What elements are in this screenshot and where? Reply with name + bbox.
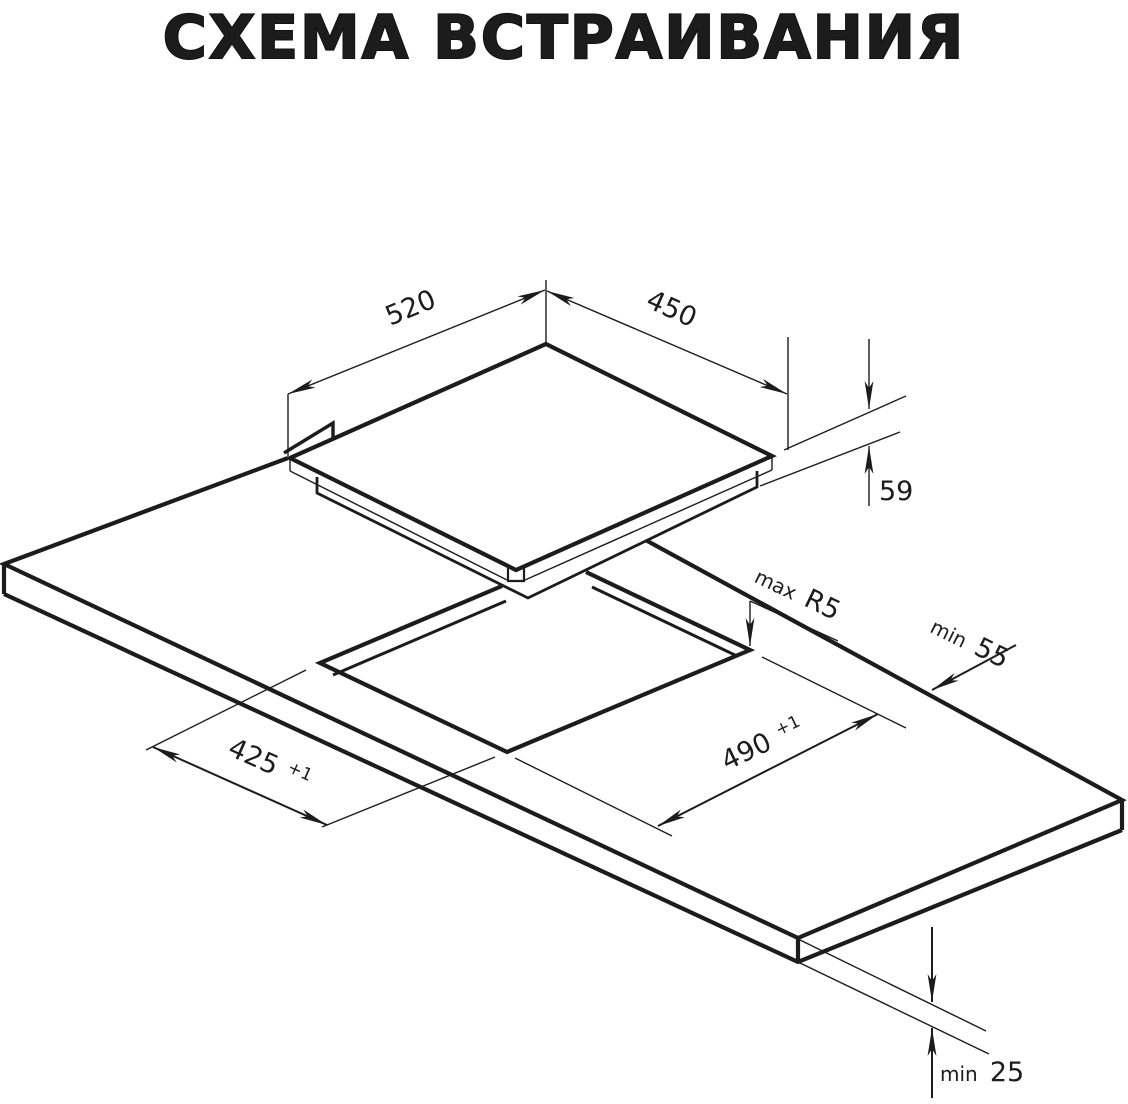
ext-line-top: [784, 396, 906, 450]
dim-425-label: 425 +1: [224, 732, 316, 796]
page-title: СХЕМА ВСТРАИВАНИЯ: [163, 3, 965, 73]
dim-min55-label: min 55: [926, 610, 1014, 675]
ext-line-left: [146, 670, 306, 750]
dim-min25-prefix: min: [940, 1062, 978, 1086]
cooktop-glass-top: [290, 344, 772, 570]
ext-line-right: [322, 757, 495, 827]
leader-rear-clearance: min 55: [926, 610, 1016, 690]
dim-maxR5-prefix: max: [751, 564, 801, 604]
ext-line-top: [800, 940, 986, 1031]
dim-520-label: 520: [381, 284, 440, 332]
cutout-inner-wall-right: [592, 587, 737, 656]
cutout-inner-wall-left: [333, 601, 506, 675]
dimension-cooktop-height: 59: [760, 339, 913, 507]
ext-line-left: [515, 758, 672, 836]
dim-maxR5-value: R5: [799, 583, 845, 626]
installation-diagram-svg: СХЕМА ВСТРАИВАНИЯ 520 450: [0, 0, 1128, 1104]
cooktop: [284, 344, 772, 598]
dim-min55-prefix: min: [927, 614, 971, 652]
dimension-worktop-thickness: min 25: [800, 927, 1024, 1098]
dimension-cutout-depth: 425 +1: [146, 670, 495, 827]
dim-59-label: 59: [879, 476, 913, 507]
dim-490-label: 490 +1: [717, 712, 809, 777]
dim-490-tolerance: +1: [772, 712, 803, 741]
dim-min25-value: 25: [990, 1057, 1024, 1088]
dim-425-value: 425: [224, 732, 284, 781]
cutout-opening-edges: [320, 572, 750, 752]
ext-line-bottom: [800, 963, 989, 1054]
dimension-cutout-width: 490 +1: [515, 657, 906, 836]
dim-min25-label: min 25: [940, 1057, 1024, 1088]
cutout: [320, 572, 750, 752]
dim-450-label: 450: [642, 284, 702, 334]
dim-maxR5-label: max R5: [750, 560, 845, 627]
dim-425-tolerance: +1: [284, 758, 315, 786]
installation-scheme-page: СХЕМА ВСТРАИВАНИЯ 520 450: [0, 0, 1128, 1104]
dim-line: [658, 714, 878, 826]
dim-min55-value: 55: [969, 632, 1014, 675]
